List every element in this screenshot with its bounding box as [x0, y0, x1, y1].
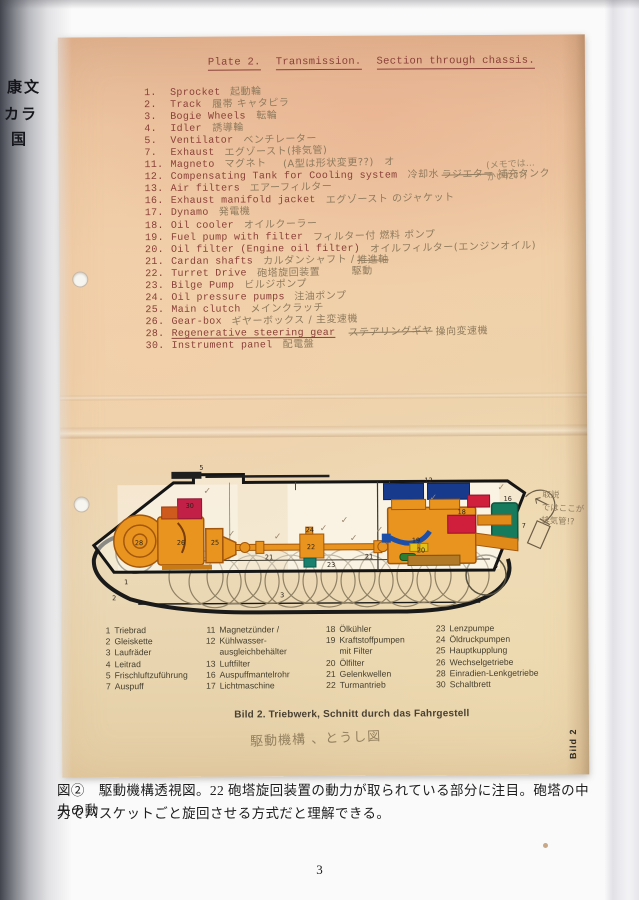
handwritten-note: 誘導輪 — [212, 118, 244, 134]
legend-text: Ölkühler — [339, 624, 371, 634]
legend-entry: 20Ölfilter — [322, 657, 405, 669]
svg-text:21: 21 — [365, 553, 373, 561]
part-number: 21. — [145, 257, 171, 268]
svg-text:16: 16 — [504, 495, 512, 503]
part-number: 20. — [145, 245, 171, 256]
gutter-text: 国 — [11, 128, 28, 149]
svg-text:22: 22 — [307, 543, 315, 551]
legend-entry: mit Filter — [321, 646, 404, 658]
part-number: 12. — [145, 172, 171, 183]
handwritten-note: 冷却水 — [407, 165, 439, 181]
part-number: 16. — [145, 196, 171, 207]
part-name: Magneto — [170, 160, 214, 171]
svg-text:3: 3 — [280, 591, 284, 599]
part-number: 30. — [146, 341, 172, 352]
book-page-edge — [604, 0, 639, 900]
page-number: 3 — [0, 862, 639, 878]
legend-entry: 18Ölkühler — [321, 624, 404, 636]
svg-text:2: 2 — [112, 594, 116, 602]
legend-entry: 24Öldruckpumpen — [431, 634, 538, 646]
legend-text: Schaltbrett — [450, 679, 491, 689]
parts-list: 1. Sprocket 起動輪 2. Track 履帯 キャタピラ 3. — [144, 81, 551, 349]
handwritten-note: エアーフィルター — [250, 178, 333, 195]
legend-entry: 5Frischluftzuführung — [97, 670, 188, 682]
legend-entry: 22Turmantrieb — [322, 680, 405, 692]
figure-caption-line-2: 力でバスケットごと旋回させる方式だと理解できる。 — [57, 802, 602, 822]
part-number: 5. — [144, 136, 170, 147]
side-label-bild-2: Bild 2 — [568, 728, 578, 759]
paper-fold — [60, 424, 587, 438]
legend-entry: 25Hauptkupplung — [431, 645, 538, 657]
svg-text:7: 7 — [522, 522, 526, 530]
part-name: Bilge Pump — [171, 280, 234, 291]
legend-entry: 28Einradien-Lenkgetriebe — [432, 668, 539, 680]
legend-entry: 12Kühlwasser- — [201, 635, 289, 647]
svg-text:✓: ✓ — [430, 493, 438, 503]
handwritten-note: オイルクーラー — [244, 214, 318, 231]
legend-entry: 1Triebrad — [96, 625, 187, 637]
legend-text: Einradien-Lenkgetriebe — [450, 668, 539, 679]
plate-title-part: Plate 2. — [208, 56, 261, 70]
legend-number: 2 — [96, 637, 110, 648]
part-name: Exhaust — [170, 148, 214, 159]
legend-text: Kraftstoffpumpen — [339, 635, 404, 645]
svg-text:20: 20 — [417, 546, 425, 554]
handwritten-note-struck: ステアリングギヤ — [348, 322, 432, 339]
punch-hole — [72, 271, 88, 287]
svg-text:✓: ✓ — [228, 530, 236, 540]
legend-number: 17 — [202, 681, 216, 692]
gutter-text: カラ — [4, 103, 38, 124]
legend-text: Luftfilter — [220, 658, 251, 668]
handwritten-note: 操向変速機 — [435, 321, 488, 337]
legend-number: 4 — [97, 659, 111, 670]
legend-number: 23 — [431, 623, 445, 634]
legend-text: Kühlwasser- — [219, 636, 266, 646]
legend-number: 21 — [322, 669, 336, 680]
legend-number: 18 — [321, 624, 335, 635]
legend-entry: 11Magnetzünder / — [201, 624, 289, 636]
legend-entry: 21Gelenkwellen — [322, 668, 405, 680]
legend-number: 1 — [96, 625, 110, 636]
part-number: 28. — [146, 329, 172, 340]
svg-text:28: 28 — [135, 539, 143, 547]
part-number: 26. — [145, 317, 171, 328]
tank-cutaway-svg: 5 30 28 26 25 24 21 22 23 21 12 18 19 16… — [77, 439, 563, 627]
gutter-text: 康文 — [7, 76, 41, 97]
page-edge-shadow — [562, 34, 590, 774]
paper-crease — [60, 392, 587, 400]
svg-text:✓: ✓ — [376, 526, 384, 536]
legend-number: 28 — [432, 668, 446, 679]
legend-number: 19 — [321, 635, 335, 646]
part-name: Cardan shafts — [171, 256, 253, 268]
svg-text:1: 1 — [124, 578, 128, 586]
legend-entry: 7Auspuff — [97, 681, 188, 693]
svg-text:18: 18 — [458, 508, 466, 516]
svg-text:24: 24 — [306, 526, 314, 534]
legend-entry: 4Leitrad — [97, 658, 188, 670]
diagram-annotation: 取説 ではここが 排気管!? — [541, 489, 609, 531]
legend-number: 3 — [96, 648, 110, 659]
part-name: Oil cooler — [171, 220, 234, 231]
legend-column: 11Magnetzünder /12Kühlwasser-ausgleichbe… — [201, 624, 289, 692]
book-page-photo: 康文 カラ 国 Plate 2.Transmission.Section thr… — [0, 0, 639, 900]
legend-text: Öldruckpumpen — [449, 634, 510, 644]
legend-number: 16 — [202, 669, 216, 680]
part-number: 11. — [144, 160, 170, 171]
legend-column: 23Lenzpumpe24Öldruckpumpen25Hauptkupplun… — [431, 623, 538, 691]
legend-text: Gelenkwellen — [340, 668, 392, 678]
svg-text:30: 30 — [186, 502, 194, 510]
part-number: 25. — [145, 305, 171, 316]
legend-text: mit Filter — [339, 646, 372, 656]
legend-number: 12 — [201, 636, 215, 647]
svg-text:✓: ✓ — [350, 534, 358, 544]
part-number: 1. — [144, 88, 170, 99]
part-name: Track — [170, 100, 202, 111]
legend-text: Ölfilter — [340, 657, 365, 667]
legend-text: Auspuffmantelrohr — [220, 669, 290, 679]
legend-column: 1Triebrad2Gleiskette3Laufräder4Leitrad5F… — [96, 625, 188, 693]
legend-text: Lichtmaschine — [220, 680, 275, 690]
plate-title-part: Section through chassis. — [377, 55, 536, 70]
legend-number: 5 — [97, 670, 111, 681]
legend-text: Leitrad — [115, 659, 141, 669]
part-name: Instrument panel — [172, 340, 273, 352]
legend-text: Frischluftzuführung — [115, 670, 188, 680]
legend-column: 18Ölkühler19Kraftstoffpumpenmit Filter20… — [321, 624, 405, 692]
part-number: 7. — [144, 148, 170, 159]
part-number: 2. — [144, 100, 170, 111]
legend-entry: 19Kraftstoffpumpen — [321, 635, 404, 647]
legend-number: 11 — [201, 625, 215, 636]
svg-text:19: 19 — [412, 536, 420, 544]
legend-text: Laufräder — [114, 647, 151, 657]
paper-stain — [543, 843, 548, 848]
svg-text:4: 4 — [494, 562, 498, 570]
legend-number: 13 — [202, 658, 216, 669]
handwritten-note: 配電盤 — [282, 335, 314, 351]
legend-number: 7 — [97, 681, 111, 692]
legend-number: 26 — [432, 657, 446, 668]
legend-entry: 3Laufräder — [96, 647, 187, 659]
part-number: 23. — [145, 281, 171, 292]
scanned-plate: Plate 2.Transmission.Section through cha… — [58, 34, 590, 777]
plate-title-part: Transmission. — [276, 56, 362, 71]
legend-text: Wechselgetriebe — [450, 656, 514, 666]
legend-entry: 17Lichtmaschine — [202, 680, 290, 692]
svg-text:21: 21 — [265, 553, 273, 561]
legend-text: Turmantrieb — [340, 680, 386, 690]
plate-title: Plate 2.Transmission.Section through cha… — [208, 55, 550, 69]
legend-entry: ausgleichbehälter — [201, 647, 289, 659]
part-number: 13. — [145, 184, 171, 195]
part-number: 22. — [145, 269, 171, 280]
legend-number: 24 — [431, 634, 445, 645]
part-number: 24. — [145, 293, 171, 304]
part-number: 19. — [145, 232, 171, 243]
part-name: Turret Drive — [171, 268, 247, 279]
tank-cutaway-diagram: 5 30 28 26 25 24 21 22 23 21 12 18 19 16… — [77, 439, 563, 627]
book-gutter: 康文 カラ 国 — [0, 0, 72, 900]
part-name: Fuel pump with filter — [171, 232, 303, 244]
part-number: 17. — [145, 208, 171, 219]
part-number: 18. — [145, 220, 171, 231]
legend-number: 25 — [431, 646, 445, 657]
handwritten-note: マグネト — [224, 154, 266, 170]
bild-caption-handwritten: 駆動機構 、とうし図 — [250, 725, 382, 749]
legend-number: 22 — [322, 680, 336, 691]
legend-number: 30 — [432, 679, 446, 690]
handwritten-note: 転輪 — [256, 106, 277, 121]
part-number: 4. — [144, 124, 170, 135]
margin-annotation: (メモでは… かいた??) — [486, 157, 536, 184]
legend-entry: 16Auspuffmantelrohr — [202, 669, 290, 681]
legend-text: Lenzpumpe — [449, 623, 494, 633]
svg-text:✓: ✓ — [497, 483, 505, 493]
svg-text:26: 26 — [177, 539, 185, 547]
part-name: Idler — [170, 124, 202, 135]
legend-entry: 13Luftfilter — [202, 658, 290, 670]
legend-text: Gleiskette — [114, 636, 152, 646]
legend-number: 20 — [322, 658, 336, 669]
svg-text:12: 12 — [424, 476, 432, 484]
legend-text: Auspuff — [115, 681, 144, 691]
handwritten-note: 履帯 キャタピラ — [211, 94, 289, 111]
part-name: Air filters — [171, 184, 240, 195]
svg-text:✓: ✓ — [320, 524, 328, 534]
part-name: Gear-box — [171, 317, 221, 328]
legend-entry: 23Lenzpumpe — [431, 623, 538, 635]
svg-text:23: 23 — [327, 561, 335, 569]
legend-text: Hauptkupplung — [449, 645, 507, 655]
hatch — [171, 471, 329, 479]
legend-text: ausgleichbehälter — [219, 647, 286, 657]
svg-text:✓: ✓ — [274, 532, 282, 542]
svg-text:5: 5 — [199, 464, 203, 472]
legend-text: Magnetzünder / — [219, 624, 279, 634]
bild-caption: Bild 2. Triebwerk, Schnitt durch das Fah… — [162, 708, 542, 721]
part-name: Dynamo — [171, 208, 209, 219]
handwritten-note: ギヤーボックス / 主変速機 — [232, 310, 359, 328]
legend-entry: 2Gleiskette — [96, 636, 187, 648]
part-number: 3. — [144, 112, 170, 123]
svg-text:✓: ✓ — [341, 516, 349, 526]
legend-entry: 30Schaltbrett — [432, 679, 539, 691]
legend-text: Triebrad — [114, 625, 146, 635]
svg-text:25: 25 — [211, 539, 219, 547]
legend-entry: 26Wechselgetriebe — [432, 656, 539, 668]
svg-text:✓: ✓ — [203, 487, 211, 497]
